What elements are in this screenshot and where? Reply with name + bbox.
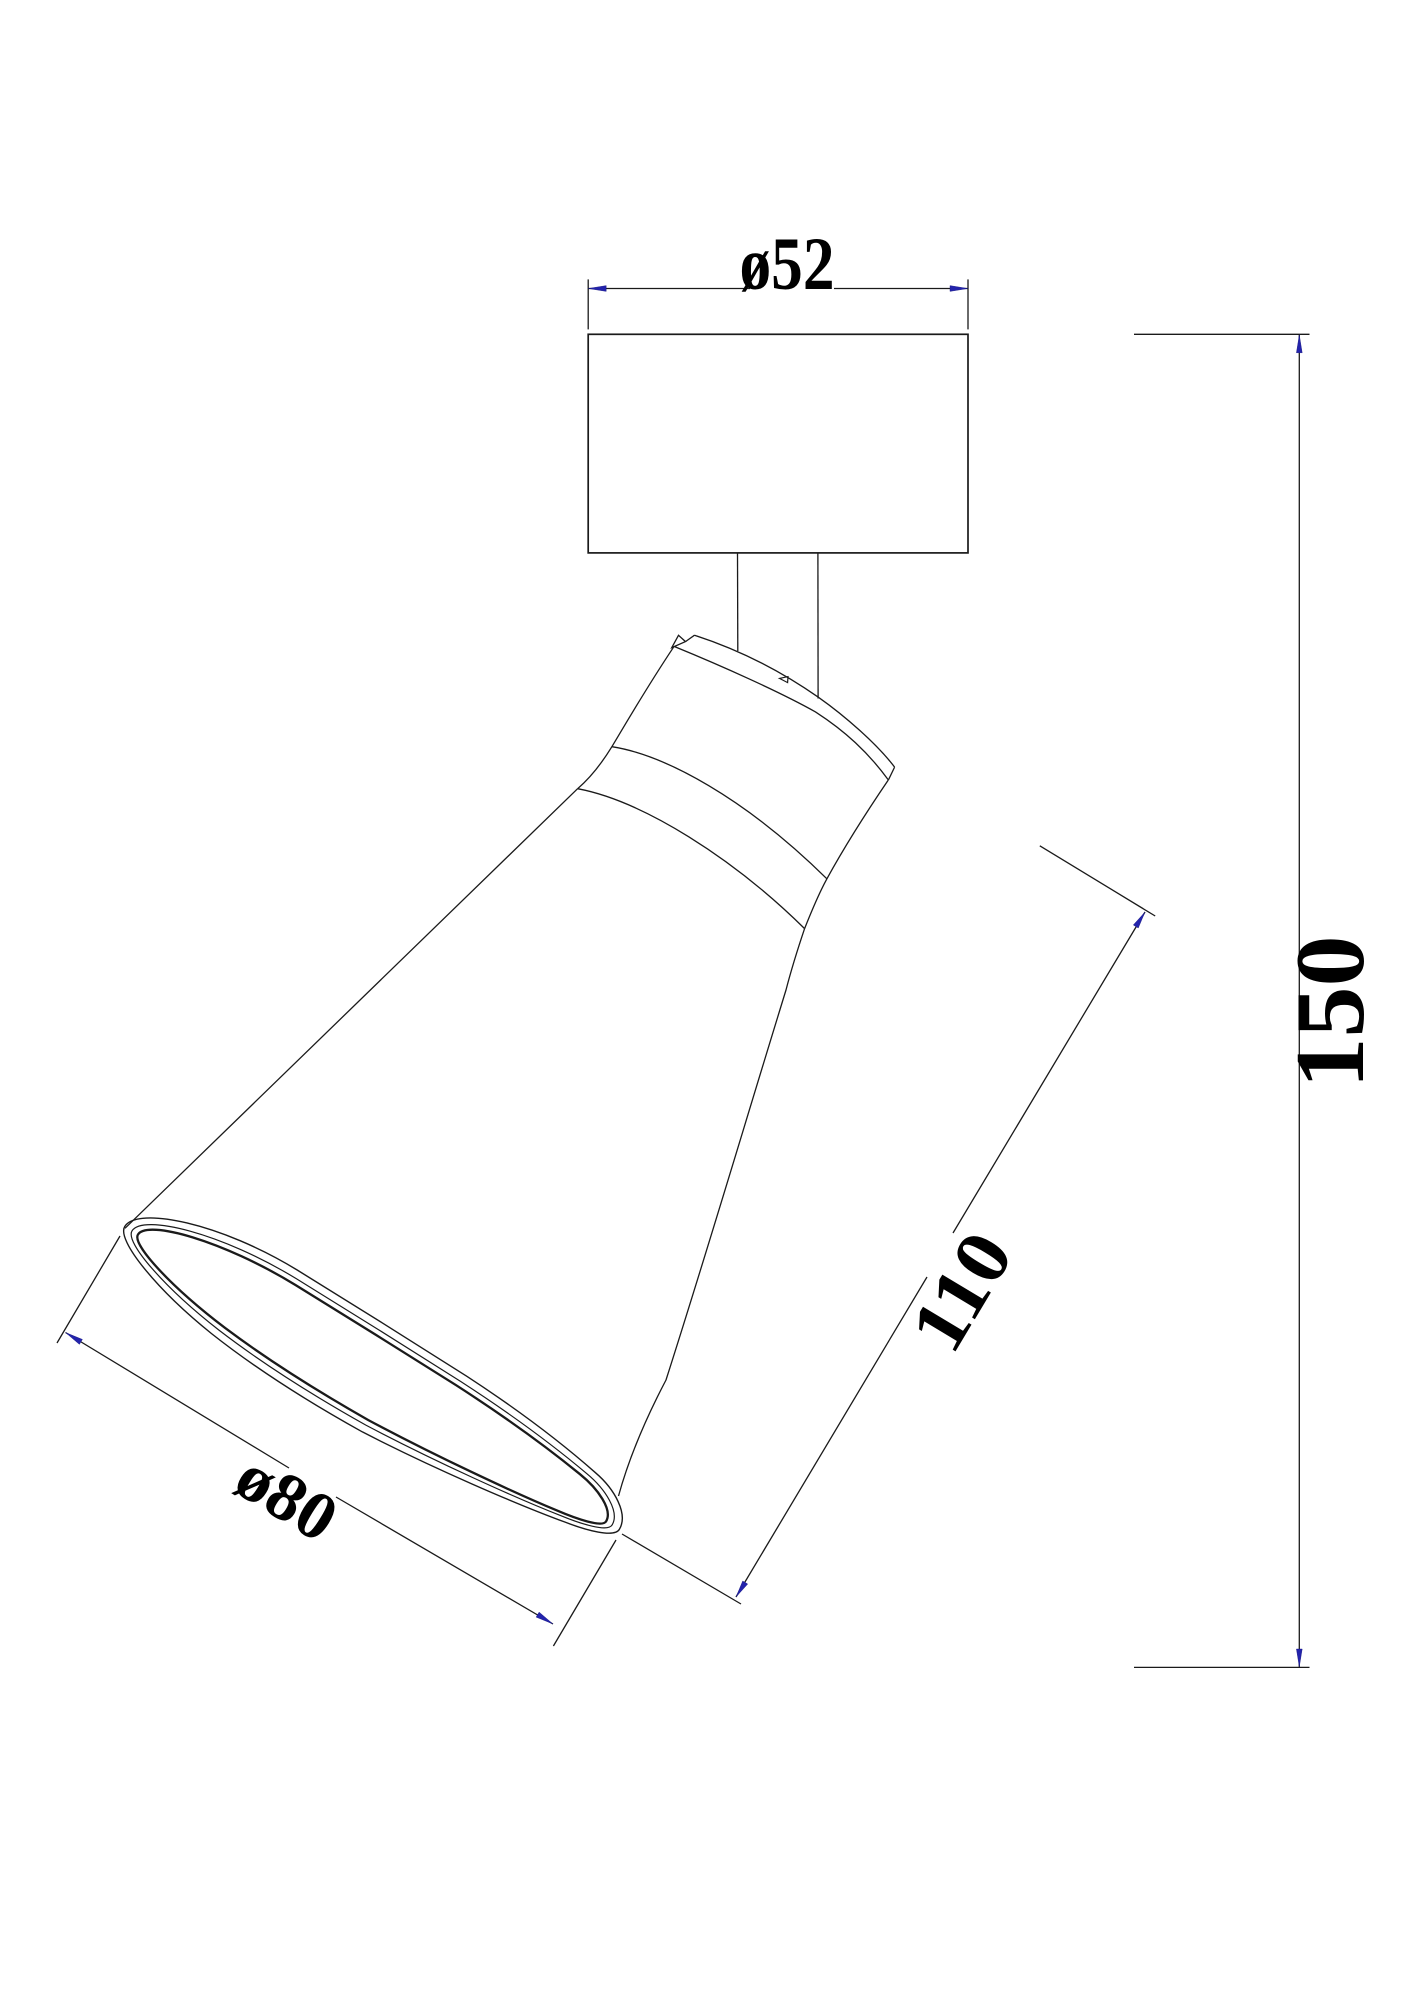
svg-text:ø52: ø52 [740, 223, 835, 306]
svg-text:150: 150 [1276, 936, 1385, 1089]
